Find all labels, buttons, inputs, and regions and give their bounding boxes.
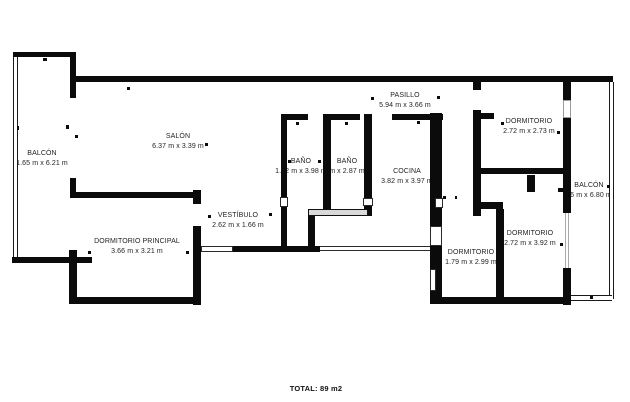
room-dims: 26 m x 6.80 m (566, 191, 612, 201)
room-dims: 1.65 m x 6.21 m (16, 159, 68, 169)
dimension-tick (560, 243, 563, 246)
room-label-dormitorio-small: DORMITORIO 1.79 m x 2.99 m (445, 248, 497, 268)
room-name: DORMITORIO (503, 117, 555, 127)
dimension-tick (318, 160, 321, 163)
room-name: SALÓN (152, 132, 204, 142)
wall-segment (563, 268, 571, 305)
wall-segment (475, 168, 567, 174)
balcony-railing (609, 82, 614, 299)
room-label-bano-2: BAÑO m x 2.87 m (329, 157, 365, 177)
wall-segment (323, 114, 331, 211)
balcony-railing (13, 57, 18, 258)
dimension-tick (17, 126, 19, 130)
room-name: COCINA (381, 167, 433, 177)
dimension-tick (443, 196, 446, 199)
wall-segment (563, 82, 571, 100)
room-dims: 2.72 m x 2.73 m (503, 127, 555, 137)
room-label-balcon-right: BALCÓN 26 m x 6.80 m (566, 181, 612, 201)
wall-segment (281, 207, 287, 246)
door-opening (435, 198, 443, 208)
wall-segment (70, 52, 76, 98)
dimension-tick (437, 96, 440, 99)
room-name: BAÑO (329, 157, 365, 167)
dimension-tick (127, 87, 130, 90)
dimension-tick (186, 251, 189, 254)
dimension-tick (558, 188, 563, 192)
wall-segment (69, 297, 198, 304)
wall-segment (233, 246, 320, 252)
wall-segment (481, 113, 494, 119)
wall-segment (193, 190, 201, 204)
wall-segment (70, 178, 76, 198)
room-name: BALCÓN (16, 149, 68, 159)
dimension-tick (288, 160, 291, 163)
wall-segment (12, 257, 92, 263)
room-name: DORMITORIO PRINCIPAL (94, 237, 180, 247)
wall-segment (193, 226, 201, 305)
balcony-slider-door (565, 213, 569, 268)
dimension-tick (88, 251, 91, 254)
room-dims: 1.79 m x 2.99 m (445, 258, 497, 268)
room-dims: 3.66 m x 3.21 m (94, 247, 180, 257)
room-name: PASILLO (379, 91, 431, 101)
room-label-dormitorio-principal: DORMITORIO PRINCIPAL 3.66 m x 3.21 m (94, 237, 180, 257)
dimension-tick (590, 296, 593, 299)
room-label-balcon-left: BALCÓN 1.65 m x 6.21 m (16, 149, 68, 169)
room-dims: 2.72 m x 3.92 m (504, 239, 556, 249)
dimension-tick (521, 299, 524, 301)
wall-segment (473, 110, 481, 216)
door-opening (430, 226, 442, 246)
wall-segment (563, 118, 571, 213)
dimension-tick (345, 122, 348, 125)
dimension-tick (501, 122, 504, 125)
wall-segment (527, 175, 535, 192)
wall-segment (70, 76, 613, 82)
dimension-tick (208, 215, 211, 218)
room-name: DORMITORIO (504, 229, 556, 239)
room-dims: 2.62 m x 1.66 m (212, 221, 264, 231)
wall-segment (473, 82, 481, 90)
room-label-dormitorio-right: DORMITORIO 2.72 m x 3.92 m (504, 229, 556, 249)
dimension-tick (75, 135, 78, 138)
wall-opening (320, 246, 430, 251)
wall-segment (364, 114, 372, 198)
floor-plan: BALCÓN 1.65 m x 6.21 m SALÓN 6.37 m x 3.… (0, 0, 630, 402)
dimension-tick (435, 181, 438, 184)
dimension-tick (607, 185, 610, 188)
door-opening (430, 269, 436, 291)
room-dims: 6.37 m x 3.39 m (152, 142, 204, 152)
dimension-tick (130, 299, 133, 301)
wall-segment (496, 209, 504, 301)
dimension-tick (455, 196, 457, 199)
dimension-tick (43, 58, 47, 61)
door-opening (280, 197, 288, 207)
room-label-vestibulo: VESTÍBULO 2.62 m x 1.66 m (212, 211, 264, 231)
total-area: TOTAL: 89 m2 (290, 384, 343, 393)
room-dims: 3.82 m x 3.97 m (381, 177, 433, 187)
door-opening (363, 198, 373, 206)
dimension-tick (371, 97, 374, 100)
dimension-tick (66, 125, 69, 129)
wall-segment (73, 192, 201, 198)
wall-segment (281, 114, 287, 197)
door-opening (201, 246, 233, 252)
room-label-pasillo: PASILLO 5.94 m x 3.66 m (379, 91, 431, 111)
room-dims: 5.94 m x 3.66 m (379, 101, 431, 111)
room-dims: m x 2.87 m (329, 167, 365, 177)
wall-segment (430, 113, 442, 226)
room-name: BALCÓN (566, 181, 612, 191)
wall-segment (69, 250, 77, 304)
room-label-dormitorio-top: DORMITORIO 2.72 m x 2.73 m (503, 117, 555, 137)
dimension-tick (269, 213, 272, 216)
wall-segment (308, 211, 315, 247)
room-label-salon: SALÓN 6.37 m x 3.39 m (152, 132, 204, 152)
dimension-tick (417, 121, 420, 124)
dimension-tick (296, 122, 299, 125)
dimension-tick (557, 131, 560, 134)
room-label-cocina: COCINA 3.82 m x 3.97 m (381, 167, 433, 187)
room-name: DORMITORIO (445, 248, 497, 258)
dimension-tick (205, 143, 208, 146)
window-band (308, 209, 368, 216)
glazed-door (563, 100, 571, 118)
wall-segment (13, 52, 75, 57)
room-name: VESTÍBULO (212, 211, 264, 221)
